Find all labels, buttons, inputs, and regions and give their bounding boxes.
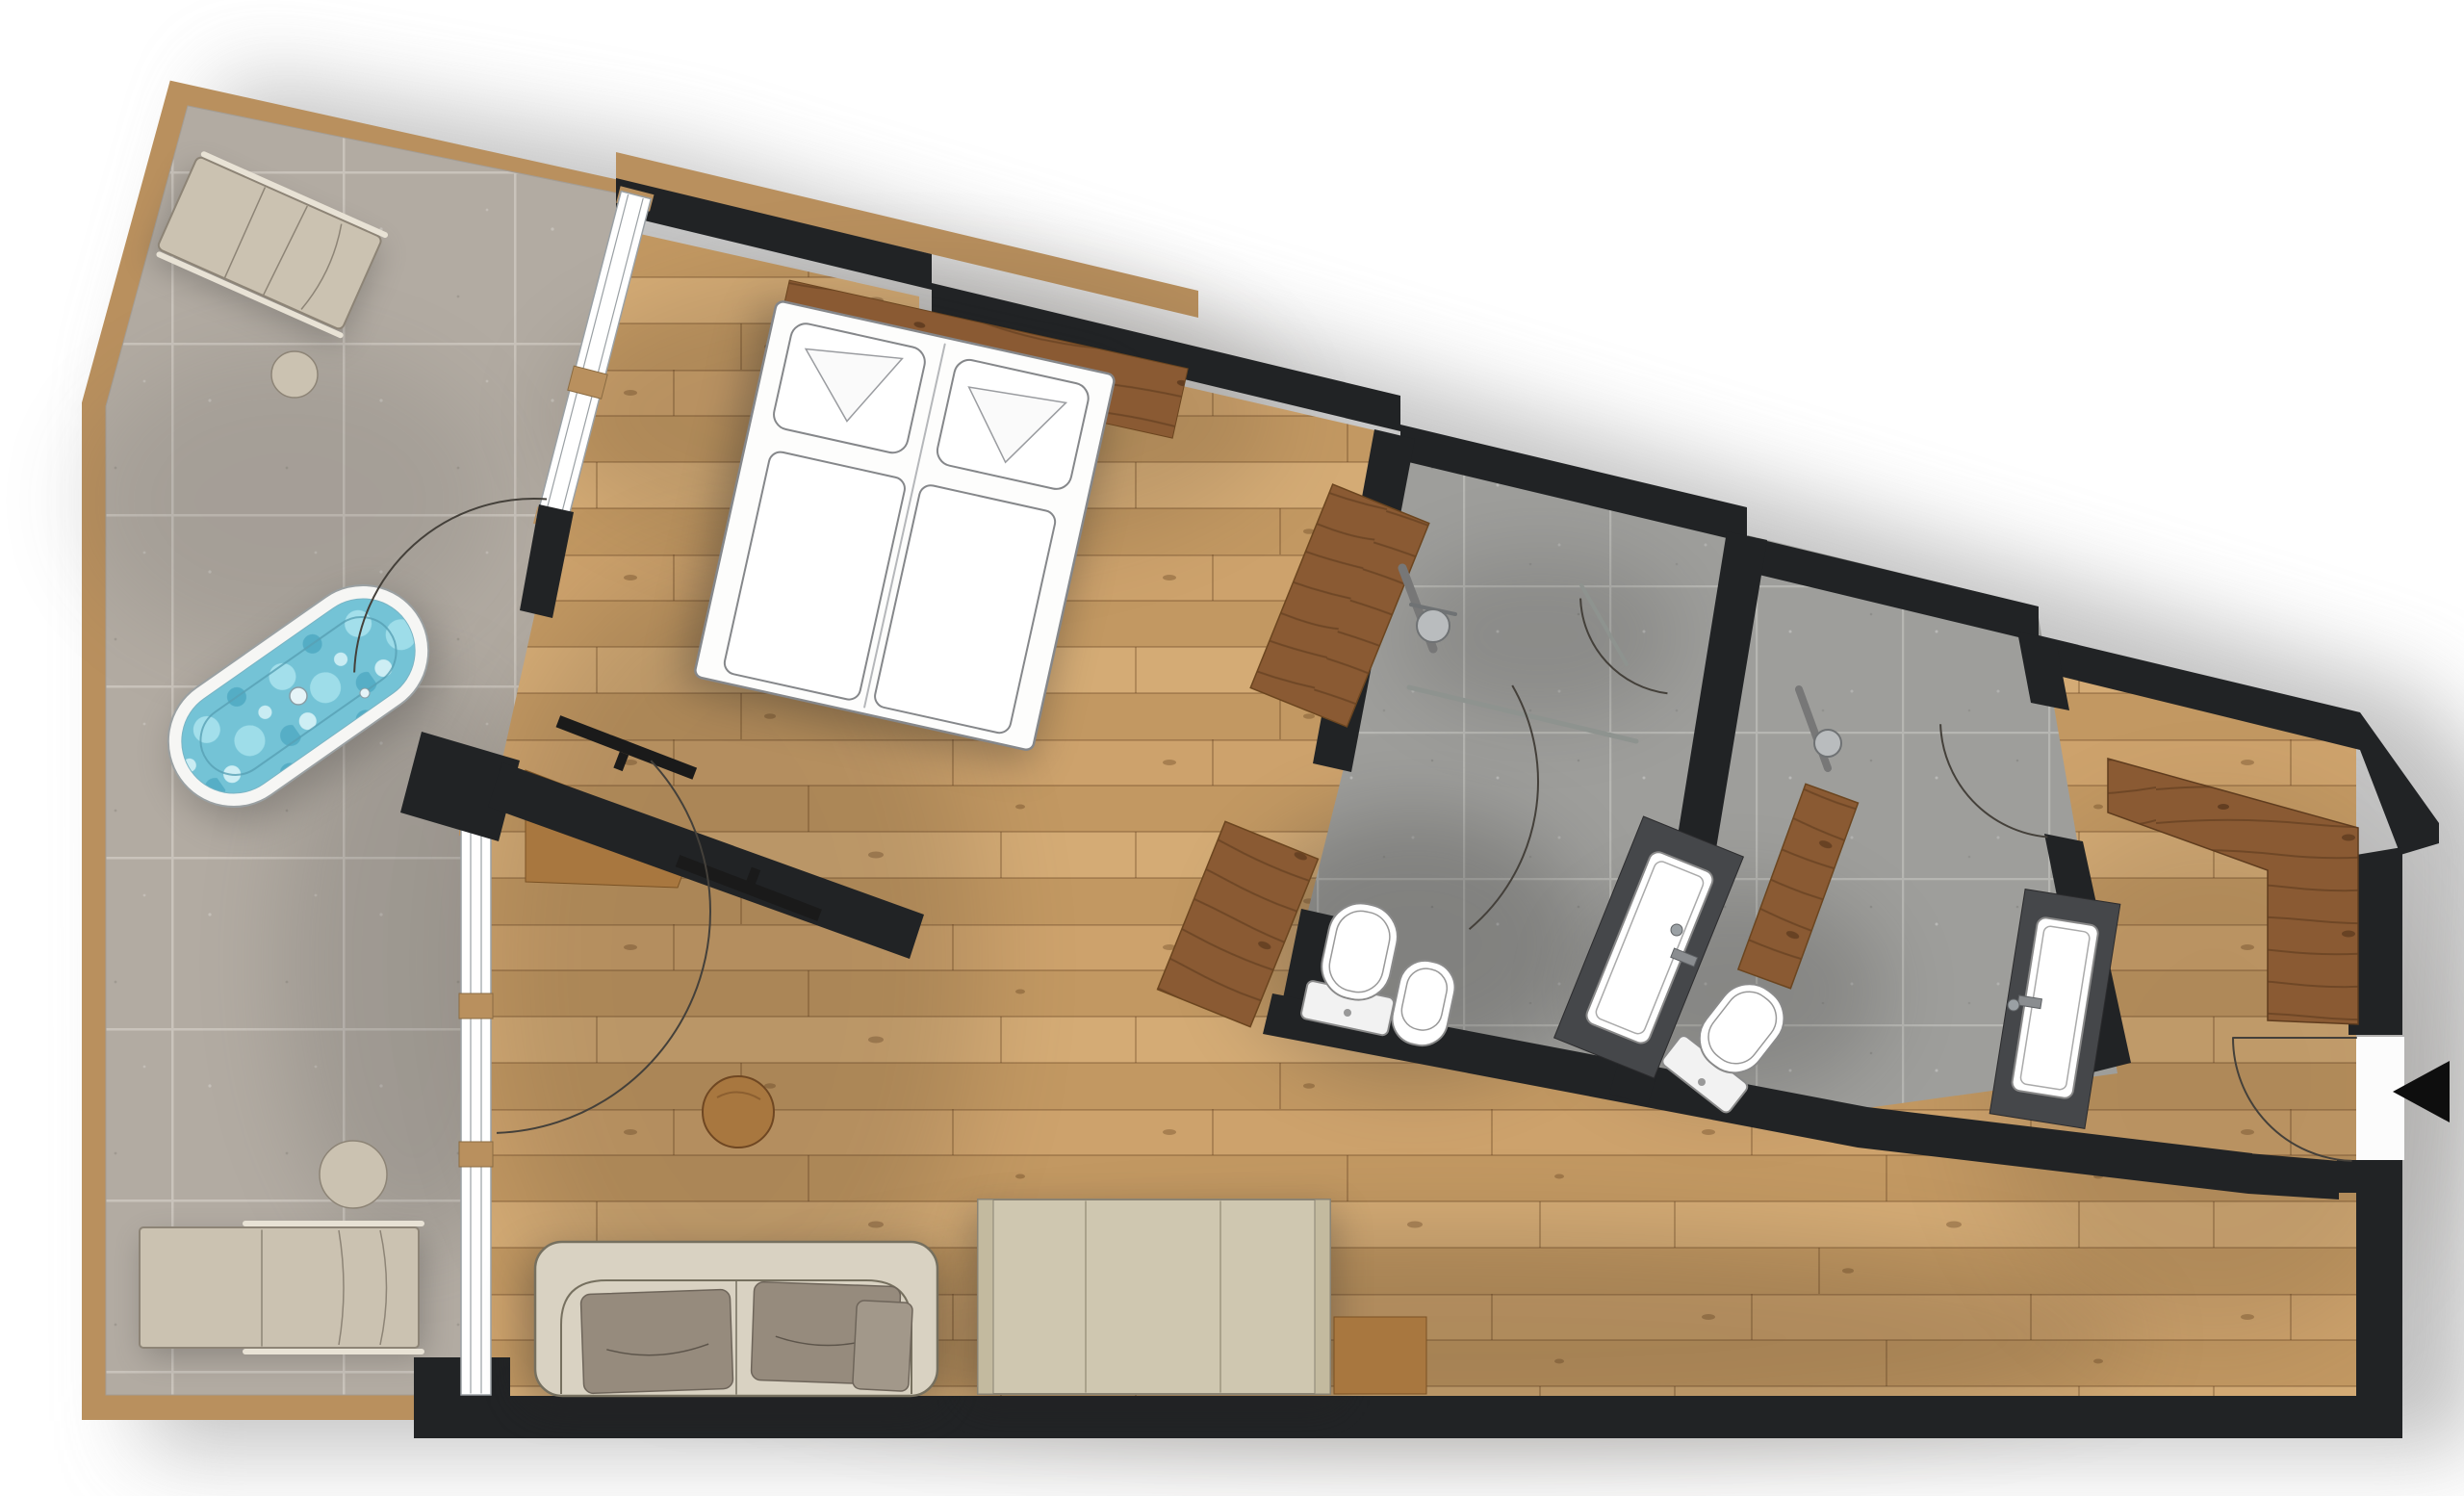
hot-tub-jet	[360, 688, 370, 698]
wall-right-door-notch-bottom	[2337, 1160, 2375, 1193]
daybed-table	[978, 1199, 1330, 1394]
sofa-blanket	[853, 1301, 913, 1392]
living-window	[461, 825, 491, 1395]
sofa-cushion-1	[580, 1289, 733, 1393]
lounge-chair-2	[140, 1227, 419, 1348]
wall-right-lower	[2356, 1160, 2402, 1398]
entry-threshold	[2356, 1037, 2404, 1160]
wall-bath-south-east-link	[2248, 1153, 2339, 1199]
floor-wood-block	[1334, 1317, 1426, 1394]
wall-right-upper	[2356, 847, 2402, 1035]
daybed-rail-left	[978, 1199, 993, 1394]
wood-stool	[703, 1076, 774, 1148]
daybed-rail-right	[1315, 1199, 1330, 1394]
living-window-mullion-2	[459, 1142, 493, 1167]
toilet-2-flush	[1698, 1078, 1706, 1086]
side-table-1	[271, 351, 318, 398]
bathroom2-shower-head	[1814, 730, 1841, 757]
sink-1-faucet-knob	[1671, 924, 1682, 936]
hot-tub-drain	[290, 687, 307, 705]
side-table-2	[320, 1141, 387, 1208]
living-window-mullion-1	[459, 993, 493, 1019]
floorplan-svg	[0, 0, 2464, 1496]
floorplan-page	[0, 0, 2464, 1496]
bathroom1-shower-head	[1417, 609, 1450, 642]
toilet-1-flush	[1344, 1009, 1351, 1017]
sink-2-faucet-knob	[2008, 999, 2019, 1011]
